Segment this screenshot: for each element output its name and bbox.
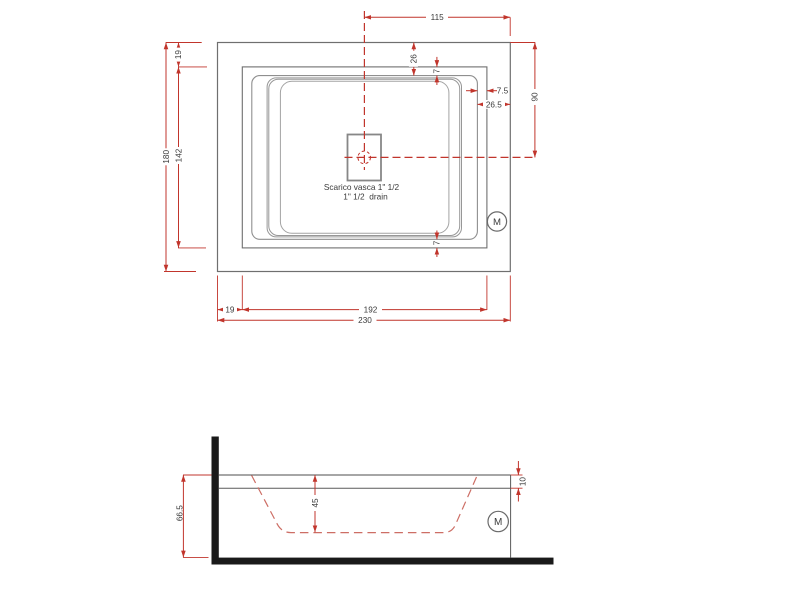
- svg-text:M: M: [494, 517, 502, 528]
- svg-text:19: 19: [174, 50, 183, 60]
- svg-text:7: 7: [433, 68, 442, 73]
- svg-text:192: 192: [364, 306, 378, 315]
- svg-text:1" 1/2 drain: 1" 1/2 drain: [343, 192, 388, 202]
- svg-text:19: 19: [225, 306, 235, 315]
- svg-text:26: 26: [409, 54, 418, 64]
- svg-text:142: 142: [175, 148, 184, 162]
- svg-text:66.5: 66.5: [175, 505, 184, 521]
- svg-text:7.5: 7.5: [497, 87, 509, 96]
- svg-text:26.5: 26.5: [486, 100, 502, 109]
- svg-text:10: 10: [518, 477, 527, 487]
- svg-text:45: 45: [311, 498, 320, 508]
- svg-text:M: M: [493, 217, 501, 228]
- svg-text:115: 115: [431, 13, 444, 22]
- svg-text:90: 90: [531, 92, 540, 102]
- svg-text:180: 180: [162, 150, 171, 164]
- svg-text:230: 230: [358, 316, 372, 325]
- svg-text:7: 7: [433, 240, 442, 245]
